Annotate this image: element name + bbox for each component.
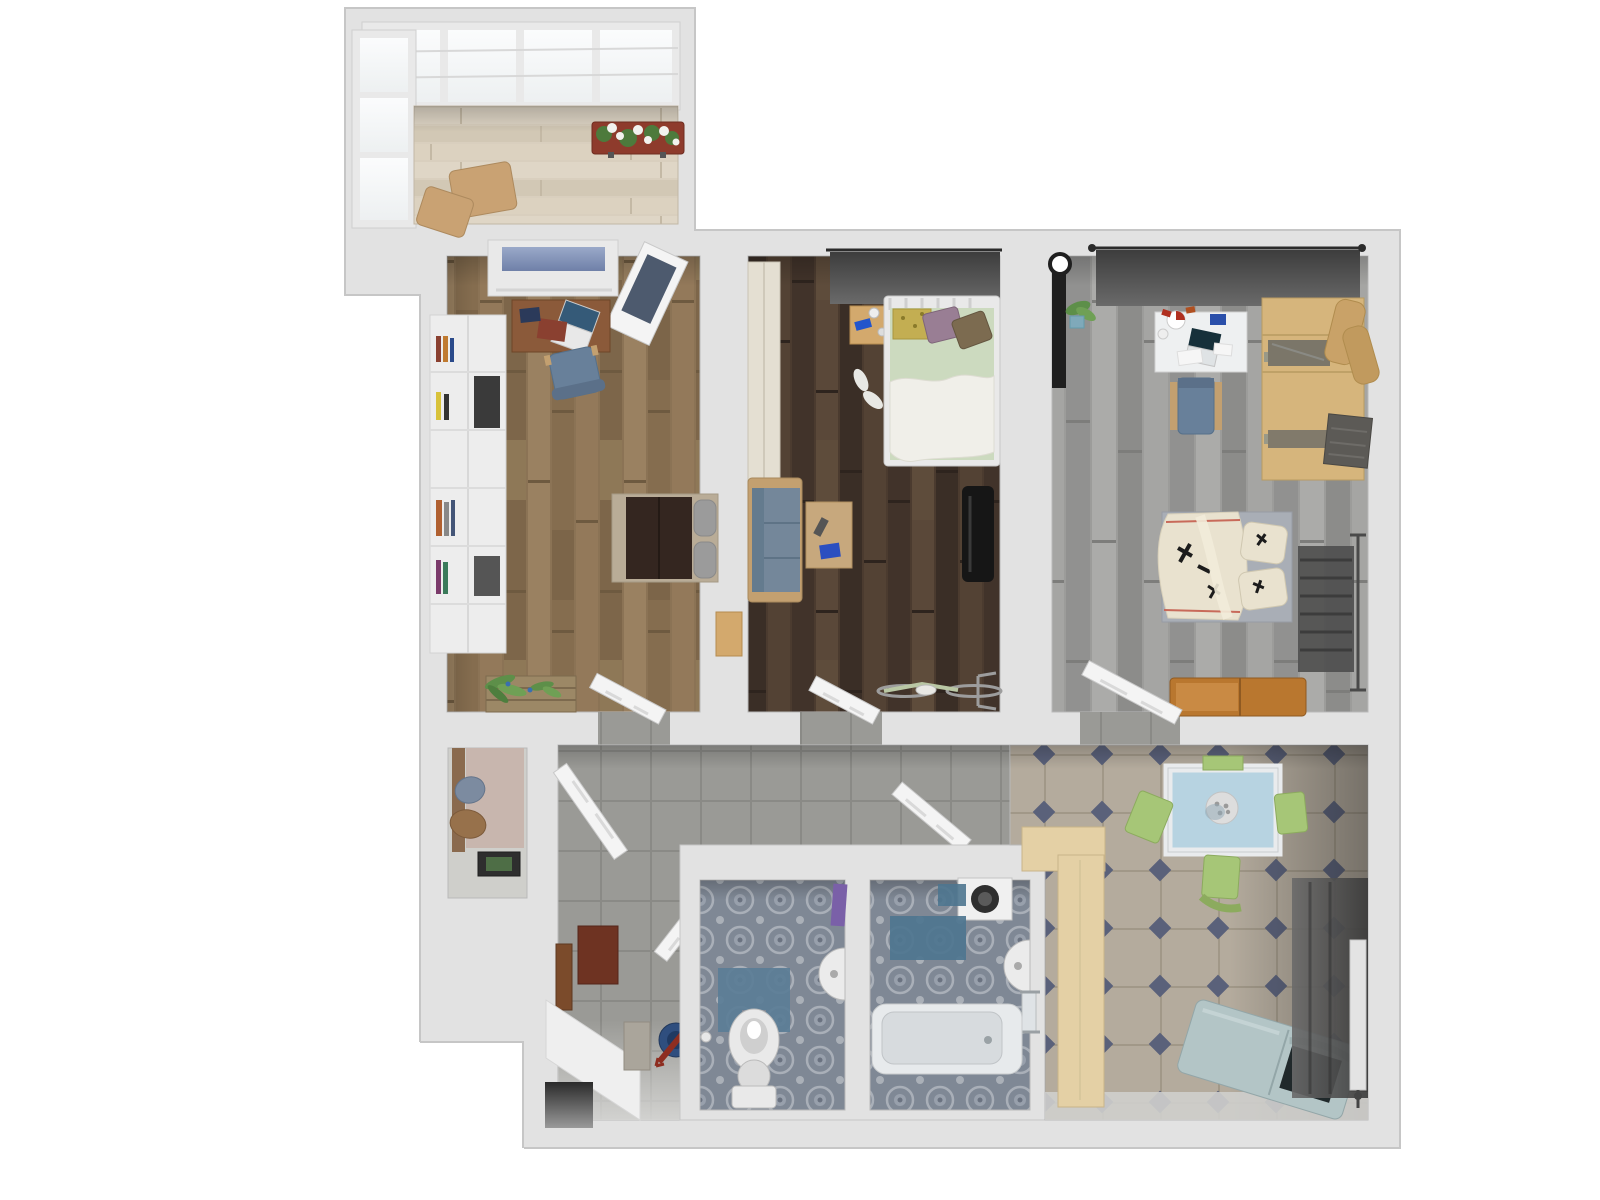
- wall-cabinet: [716, 612, 742, 656]
- kitchen-chair-north: [1203, 756, 1243, 770]
- bath-small-mat: [938, 884, 966, 906]
- room-bedroom: [716, 250, 1002, 745]
- toilet: [729, 1009, 779, 1108]
- folded-textiles: [1324, 414, 1373, 468]
- floor-plan-svg: [0, 0, 1600, 1200]
- entry-niche: [545, 1082, 593, 1128]
- flower-box: [592, 122, 684, 158]
- wc-sink-drain: [830, 970, 838, 978]
- balcony-roof-pane: [524, 30, 592, 102]
- bedroom-bed: [884, 296, 1000, 466]
- room-kitchen: [1010, 745, 1368, 1121]
- wc-paper-holder: [701, 1032, 711, 1042]
- room-study: [430, 240, 718, 745]
- gray-bedroom-chair: [1170, 378, 1222, 434]
- room-wc: [700, 880, 847, 1110]
- study-daybed: [612, 494, 718, 582]
- hall-gray-box: [624, 1022, 650, 1070]
- wc-towel: [831, 884, 848, 927]
- bedroom-sofa: [748, 478, 802, 602]
- bedroom-coffee-table: [806, 502, 852, 568]
- balcony-window-pane: [360, 98, 408, 152]
- outside-notch: [419, 1042, 524, 1149]
- balcony-roof-pane: [600, 30, 672, 102]
- curtain-rod-finial: [1358, 244, 1366, 252]
- floor-plan-stage: [0, 0, 1600, 1200]
- hall-brown-door: [556, 944, 572, 1010]
- kitchen-radiator: [1350, 940, 1366, 1108]
- study-shelf: [430, 315, 506, 653]
- curtain-rod-finial: [1088, 244, 1096, 252]
- balcony-window-pane: [360, 158, 408, 220]
- wc-top-shadow: [700, 880, 845, 900]
- room-bathroom: [870, 878, 1040, 1110]
- gray-bedroom-bed: [1158, 512, 1292, 622]
- bath-block: [680, 845, 1045, 1120]
- shelf-dark-object: [474, 556, 500, 596]
- balcony-roof-pane: [448, 30, 516, 102]
- room-closet: [447, 748, 527, 898]
- bathtub: [872, 1004, 1022, 1074]
- closet-floor-mat: [478, 852, 520, 876]
- bedroom-tv: [962, 486, 994, 582]
- washing-machine: [958, 878, 1012, 920]
- wooden-bench: [1170, 678, 1306, 716]
- room-gray-bedroom: [1050, 244, 1381, 745]
- balcony-window-pane: [360, 38, 408, 92]
- gray-bedroom-desk: [1155, 306, 1247, 372]
- bath-big-mat: [890, 916, 966, 960]
- hallway-top-shadow: [558, 745, 1010, 769]
- study-window: [488, 240, 618, 296]
- room-balcony: [352, 22, 684, 239]
- dining-table: [1168, 768, 1278, 852]
- shelf-dark-object: [474, 376, 500, 428]
- kitchen-chair-east: [1274, 792, 1308, 835]
- study-plant-crate: [483, 672, 576, 712]
- hall-door-mat: [578, 926, 618, 984]
